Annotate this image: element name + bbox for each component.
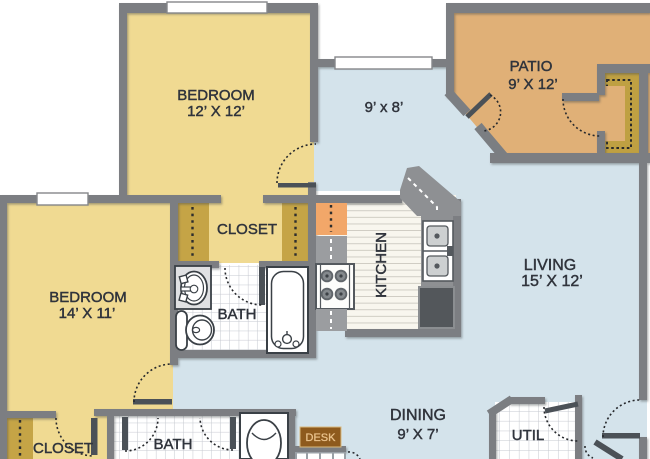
svg-text:LIVING: LIVING bbox=[524, 257, 576, 274]
svg-text:BATH: BATH bbox=[154, 436, 193, 453]
svg-text:9’ x 8’: 9’ x 8’ bbox=[365, 99, 404, 116]
svg-text:BEDROOM: BEDROOM bbox=[177, 87, 255, 104]
svg-text:DESK: DESK bbox=[306, 432, 337, 444]
svg-text:9’ X 7’: 9’ X 7’ bbox=[397, 426, 438, 443]
svg-text:BEDROOM: BEDROOM bbox=[49, 289, 127, 306]
svg-text:PATIO: PATIO bbox=[510, 58, 553, 75]
svg-text:DINING: DINING bbox=[390, 407, 446, 424]
svg-text:BATH: BATH bbox=[218, 306, 257, 323]
svg-text:UTIL: UTIL bbox=[512, 427, 545, 444]
svg-text:9’ X 12’: 9’ X 12’ bbox=[508, 76, 557, 93]
svg-text:CLOSET: CLOSET bbox=[217, 221, 277, 238]
svg-text:12’ X 12’: 12’ X 12’ bbox=[187, 103, 245, 120]
svg-text:14’ X 11’: 14’ X 11’ bbox=[59, 305, 116, 322]
svg-text:15’ X 12’: 15’ X 12’ bbox=[521, 273, 583, 290]
svg-text:CLOSET: CLOSET bbox=[33, 440, 93, 457]
svg-text:KITCHEN: KITCHEN bbox=[373, 232, 390, 298]
